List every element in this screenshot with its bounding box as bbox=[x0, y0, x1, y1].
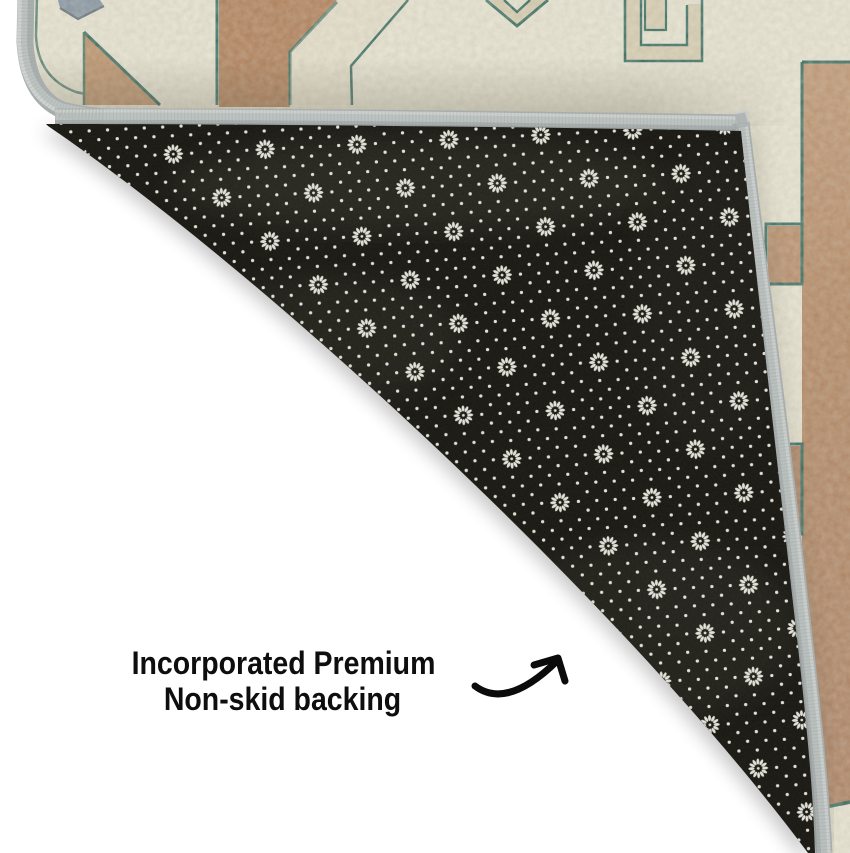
svg-text:Incorporated Premium: Incorporated Premium bbox=[132, 647, 436, 682]
svg-text:Non-skid backing: Non-skid backing bbox=[164, 683, 401, 718]
